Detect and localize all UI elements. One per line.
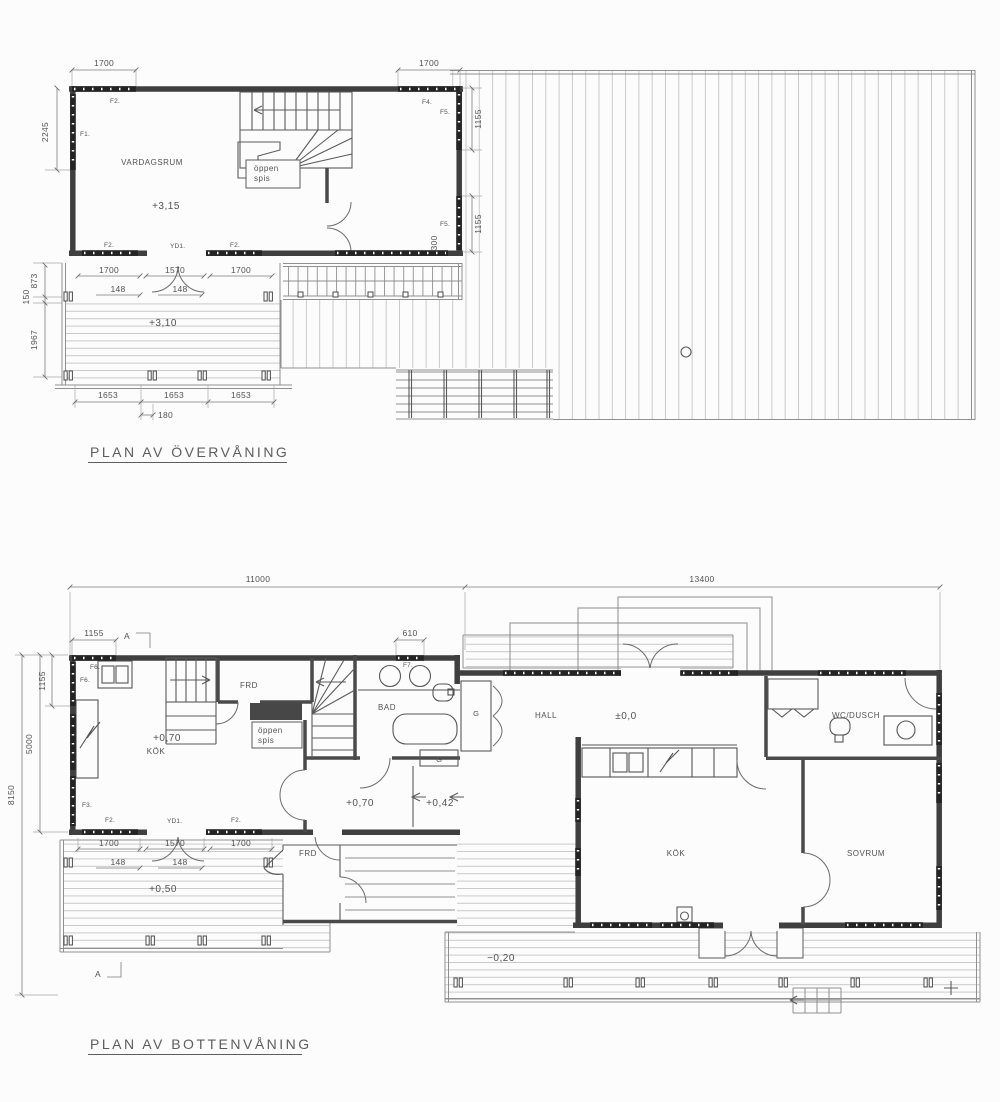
upper-roof-deck	[281, 70, 975, 420]
lower-plan-title: PLAN AV BOTTENVÅNING	[88, 1036, 312, 1055]
section-marker-a-top: A	[124, 631, 130, 641]
window-label-f7: F7.	[403, 662, 413, 669]
level-label-315: +3,15	[152, 201, 180, 212]
window-label-f3: F3.	[82, 802, 92, 809]
dim-1570-deck: 1570	[165, 838, 185, 848]
lower-winder-stair	[312, 658, 355, 750]
room-label-kok-lower: KÖK	[667, 849, 686, 858]
deck-door-screen-left	[699, 928, 725, 958]
dim-1570-deck: 1570	[165, 265, 185, 275]
level-label-070-kok: +0,70	[153, 733, 181, 744]
room-label-frd-1: FRD	[240, 681, 258, 690]
level-label-minus-020: −0,20	[487, 953, 515, 964]
label-oppen-spis-lower-1: öppen	[258, 726, 283, 735]
upper-double-door-swing	[327, 202, 351, 252]
dim-180: 180	[158, 410, 173, 420]
passage-deck-door-swing	[315, 835, 340, 860]
label-oppen-spis-2: spis	[254, 174, 270, 183]
window-label-f5-lower: F5.	[440, 221, 450, 228]
dim-11000: 11000	[246, 574, 271, 584]
door-label-yd1-lower: YD1.	[167, 818, 182, 825]
dim-148-right: 148	[172, 284, 187, 294]
dim-2245: 2245	[40, 122, 50, 142]
hall-kitchen-counter	[582, 745, 766, 789]
dim-1700-deck-a: 1700	[99, 838, 119, 848]
dim-148-deck-right: 148	[172, 857, 187, 867]
window-label-f2-top: F2.	[110, 98, 120, 105]
label-oppen-spis-1: öppen	[254, 164, 279, 173]
dim-1967: 1967	[29, 330, 39, 350]
label-oppen-spis-lower-2: spis	[258, 736, 274, 745]
level-label-310: +3,10	[149, 318, 177, 329]
room-label-wc-dusch: WC/DUSCH	[832, 711, 880, 720]
window-label-f2-lower-left: F2.	[105, 817, 115, 824]
window-label-f6-left: F6.	[80, 677, 90, 684]
dim-5000: 5000	[24, 734, 34, 754]
door-label-yd1: YD1.	[170, 243, 185, 250]
drawing-sheet: 1700 1700 2245 1155 1155 300 873 150 196…	[0, 0, 1000, 1102]
upper-balcony	[283, 263, 462, 300]
dim-150: 150	[21, 289, 31, 304]
dim-148-left: 148	[110, 284, 125, 294]
dim-610: 610	[402, 628, 417, 638]
room-label-vardagsrum: VARDAGSRUM	[121, 158, 183, 167]
bad-fixtures	[358, 666, 460, 745]
dim-1700-deck-right: 1700	[231, 265, 251, 275]
room-label-hall: HALL	[535, 711, 557, 720]
dim-1155-right-upper: 1155	[473, 109, 483, 128]
lower-north-deck	[463, 597, 772, 672]
room-label-sovrum: SOVRUM	[847, 849, 885, 858]
lower-straight-stair	[166, 658, 216, 744]
room-label-kok-upper: KÖK	[147, 747, 166, 756]
closet-label-g2: G	[436, 755, 442, 764]
dim-1155-left: 1155	[37, 671, 47, 690]
kok-drain	[677, 907, 692, 922]
window-label-f2-lower-right: F2.	[231, 817, 241, 824]
section-marker-a-bottom: A	[95, 969, 101, 979]
closet-label-g1: G	[473, 709, 479, 718]
dim-873: 873	[29, 273, 39, 288]
level-label-070-passage: +0,70	[346, 798, 374, 809]
ground-floor-plan: 11000 13400 1155 A 610 1155 5000 8150 F6…	[6, 574, 980, 1055]
room-label-frd-2: FRD	[299, 849, 317, 858]
window-label-f5-upper: F5.	[440, 109, 450, 116]
window-label-f1: F1.	[80, 131, 90, 138]
dim-1700-deck-left: 1700	[99, 265, 119, 275]
window-label-f6-top: F6.	[90, 664, 100, 671]
level-label-050: +0,50	[149, 884, 177, 895]
dim-148-deck-left: 148	[110, 857, 125, 867]
garderob-1	[461, 681, 502, 751]
deck-door-screen-right	[777, 928, 803, 958]
window-label-f2-bottom-left: F2.	[104, 242, 114, 249]
dim-1700-deck-b: 1700	[231, 838, 251, 848]
upper-title-text: PLAN AV ÖVERVÅNING	[90, 443, 289, 460]
upper-plan-title: PLAN AV ÖVERVÅNING	[88, 443, 289, 463]
window-label-f4: F4.	[422, 99, 432, 106]
upper-stair	[240, 92, 352, 168]
window-label-f2-bottom-right: F2.	[230, 242, 240, 249]
dim-1155-top: 1155	[84, 628, 103, 638]
room-label-bad: BAD	[378, 703, 396, 712]
level-label-00: ±0,0	[615, 711, 636, 722]
lower-south-deck	[60, 835, 340, 952]
dim-1700-top-right: 1700	[419, 58, 439, 68]
dim-1653-b: 1653	[164, 390, 184, 400]
upper-deck-steps	[396, 370, 553, 419]
lower-title-text: PLAN AV BOTTENVÅNING	[90, 1036, 312, 1052]
sovrum-door-swing	[803, 853, 830, 907]
dim-300: 300	[429, 235, 439, 250]
dim-1155-right-lower: 1155	[473, 214, 483, 233]
dim-1653-a: 1653	[98, 390, 118, 400]
upper-floor-plan: 1700 1700 2245 1155 1155 300 873 150 196…	[21, 58, 975, 463]
dim-1653-c: 1653	[231, 390, 251, 400]
deck-storage-frd	[264, 845, 457, 925]
dim-1700-top-left: 1700	[94, 58, 114, 68]
level-label-042: +0,42	[426, 798, 454, 809]
dim-8150: 8150	[6, 785, 16, 805]
dim-13400: 13400	[689, 574, 714, 584]
floor-plan-drawing: 1700 1700 2245 1155 1155 300 873 150 196…	[0, 0, 1000, 1102]
